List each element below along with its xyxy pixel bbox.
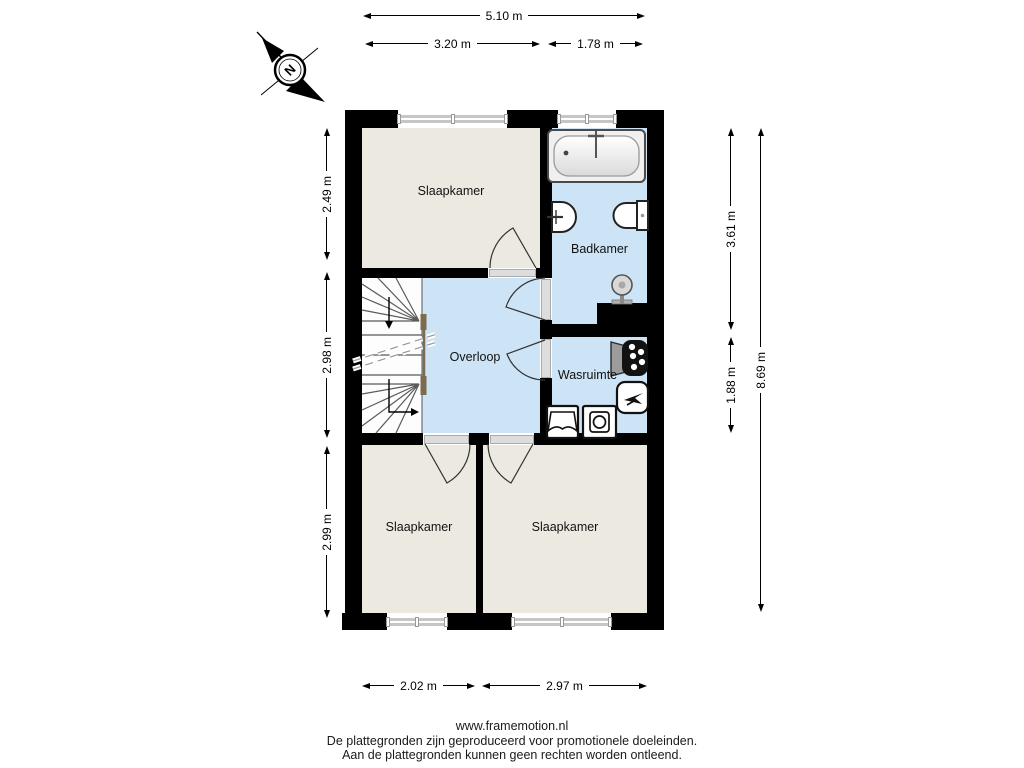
window	[558, 115, 616, 123]
wall	[362, 433, 423, 445]
room-label-slaapkamer-bl: Slaapkamer	[362, 520, 476, 534]
footer-disclaimer-1: De plattegronden zijn geproduceerd voor …	[0, 734, 1024, 749]
dim-right-1: 3.61 m	[723, 128, 738, 330]
footer-website: www.framemotion.nl	[0, 719, 1024, 734]
wall	[552, 324, 647, 337]
wall	[507, 110, 558, 128]
wall	[540, 128, 552, 278]
room-label-wasruimte: Wasruimte	[540, 368, 635, 382]
wall	[342, 613, 387, 630]
door-threshold	[489, 269, 536, 277]
dim-top-total: 5.10 m	[363, 8, 645, 23]
dim-left-1: 2.49 m	[319, 128, 334, 260]
wall	[540, 320, 552, 339]
room-label-overloop: Overloop	[410, 350, 540, 364]
floor-slaapkamer-top	[362, 128, 540, 268]
door-threshold	[490, 435, 534, 444]
wall	[616, 110, 664, 128]
door-threshold	[424, 435, 469, 444]
wall	[362, 268, 488, 278]
room-label-badkamer: Badkamer	[552, 242, 647, 256]
footer: www.framemotion.nl De plattegronden zijn…	[0, 719, 1024, 763]
dim-bottom-2: 2.97 m	[482, 678, 647, 693]
dim-bottom-1: 2.02 m	[362, 678, 475, 693]
floor-badkamer	[552, 128, 647, 324]
compass-letter: N	[281, 61, 298, 78]
window	[387, 618, 447, 626]
wall	[469, 433, 489, 445]
compass-north-icon: N	[257, 32, 325, 102]
wall	[345, 110, 362, 630]
wall	[447, 613, 512, 630]
wall	[611, 613, 664, 630]
window	[398, 115, 507, 123]
wall	[345, 110, 398, 128]
wall	[476, 445, 483, 613]
wall	[647, 110, 664, 630]
window	[512, 618, 611, 626]
wall	[540, 378, 552, 433]
wall	[534, 433, 647, 445]
room-label-slaapkamer-top: Slaapkamer	[362, 184, 540, 198]
door-threshold	[541, 279, 551, 320]
room-label-slaapkamer-br: Slaapkamer	[483, 520, 647, 534]
dim-left-2: 2.98 m	[319, 272, 334, 438]
floor-wasruimte	[552, 337, 647, 433]
footer-disclaimer-2: Aan de plattegronden kunnen geen rechten…	[0, 748, 1024, 763]
dim-top-left: 3.20 m	[365, 36, 540, 51]
floor-plan: N	[0, 0, 1024, 768]
dim-left-3: 2.99 m	[319, 446, 334, 618]
dim-top-right: 1.78 m	[548, 36, 643, 51]
dim-right-2: 1.88 m	[723, 337, 738, 433]
dim-right-total: 8.69 m	[753, 128, 768, 612]
wall-shower-partition	[597, 303, 647, 324]
